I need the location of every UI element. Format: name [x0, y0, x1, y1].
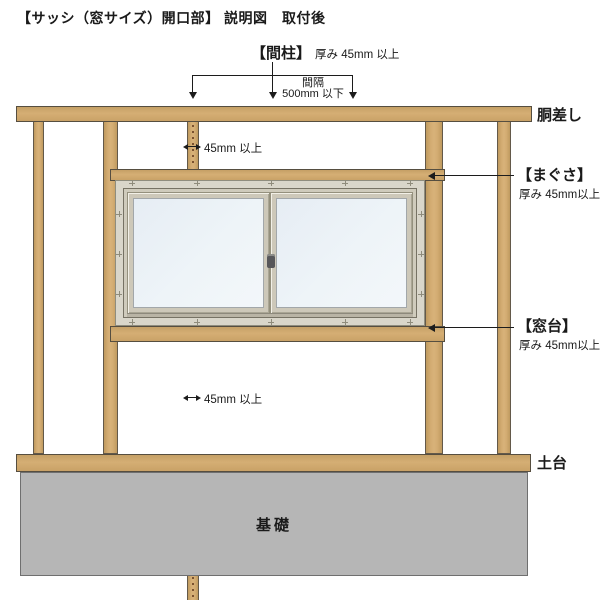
window-bottom-track	[127, 313, 413, 317]
stud-width-text-upper: 45mm 以上	[204, 140, 262, 156]
arrow-down-icon	[189, 92, 197, 99]
mabashira-spec: 厚み 45mm 以上	[315, 46, 399, 63]
dousashi-label: 胴差し	[537, 104, 582, 125]
page-title: 【サッシ（窓サイズ）開口部】 説明図 取付後	[17, 8, 325, 28]
stud-full-left	[33, 121, 44, 454]
magusa-pointer-line	[435, 175, 514, 176]
foundation-kiso: 基礎	[20, 472, 528, 576]
stud-width-dim-lower	[183, 394, 201, 401]
window-latch-icon	[267, 254, 275, 268]
screw-mark-icon	[116, 251, 122, 257]
madodai-pointer-line	[435, 327, 514, 328]
window-glass-left	[133, 198, 264, 308]
window-sill-madodai	[110, 326, 445, 342]
stud-width-dim-upper	[183, 143, 201, 150]
screw-mark-icon	[129, 319, 135, 325]
mabashira-term: 【間柱】	[251, 42, 311, 63]
screw-mark-icon	[407, 319, 413, 325]
arrow-right-icon	[196, 144, 201, 150]
screw-mark-icon	[268, 180, 274, 186]
stud-full-right	[497, 121, 511, 454]
madodai-term: 【窓台】	[517, 315, 577, 336]
screw-mark-icon	[268, 319, 274, 325]
magusa-spec: 厚み 45mm以上	[519, 186, 600, 202]
screw-mark-icon	[116, 211, 122, 217]
screw-mark-icon	[407, 180, 413, 186]
window-pane-right	[270, 192, 413, 314]
top-beam-dousashi	[16, 106, 532, 122]
screw-mark-icon	[418, 291, 424, 297]
spacing-line2: 500mm 以下	[273, 89, 353, 100]
stud-width-text-lower: 45mm 以上	[204, 391, 262, 407]
madodai-spec: 厚み 45mm以上	[519, 337, 600, 353]
diagram-canvas: 【サッシ（窓サイズ）開口部】 説明図 取付後 基礎 【間柱】	[0, 0, 600, 600]
screw-mark-icon	[194, 180, 200, 186]
screw-mark-icon	[342, 319, 348, 325]
arrow-left-icon	[428, 172, 435, 180]
mabashira-label: 【間柱】 厚み 45mm 以上	[251, 42, 399, 63]
arrow-right-icon	[196, 395, 201, 401]
window-pane-left	[127, 192, 270, 314]
mabashira-pointer-crossbar	[193, 75, 353, 76]
dodai-label: 土台	[537, 452, 567, 473]
screw-mark-icon	[116, 291, 122, 297]
bottom-beam-dodai	[16, 454, 531, 472]
screw-mark-icon	[418, 211, 424, 217]
screw-mark-icon	[342, 180, 348, 186]
stud-spacing-label: 間隔 500mm 以下	[273, 78, 353, 100]
screw-mark-icon	[129, 180, 135, 186]
kiso-label: 基礎	[256, 514, 292, 535]
arrow-left-icon	[428, 324, 435, 332]
window-glass-right	[276, 198, 407, 308]
magusa-term: 【まぐさ】	[517, 164, 592, 185]
screw-mark-icon	[194, 319, 200, 325]
mabashira-pointer-left-line	[192, 75, 193, 93]
screw-mark-icon	[418, 251, 424, 257]
